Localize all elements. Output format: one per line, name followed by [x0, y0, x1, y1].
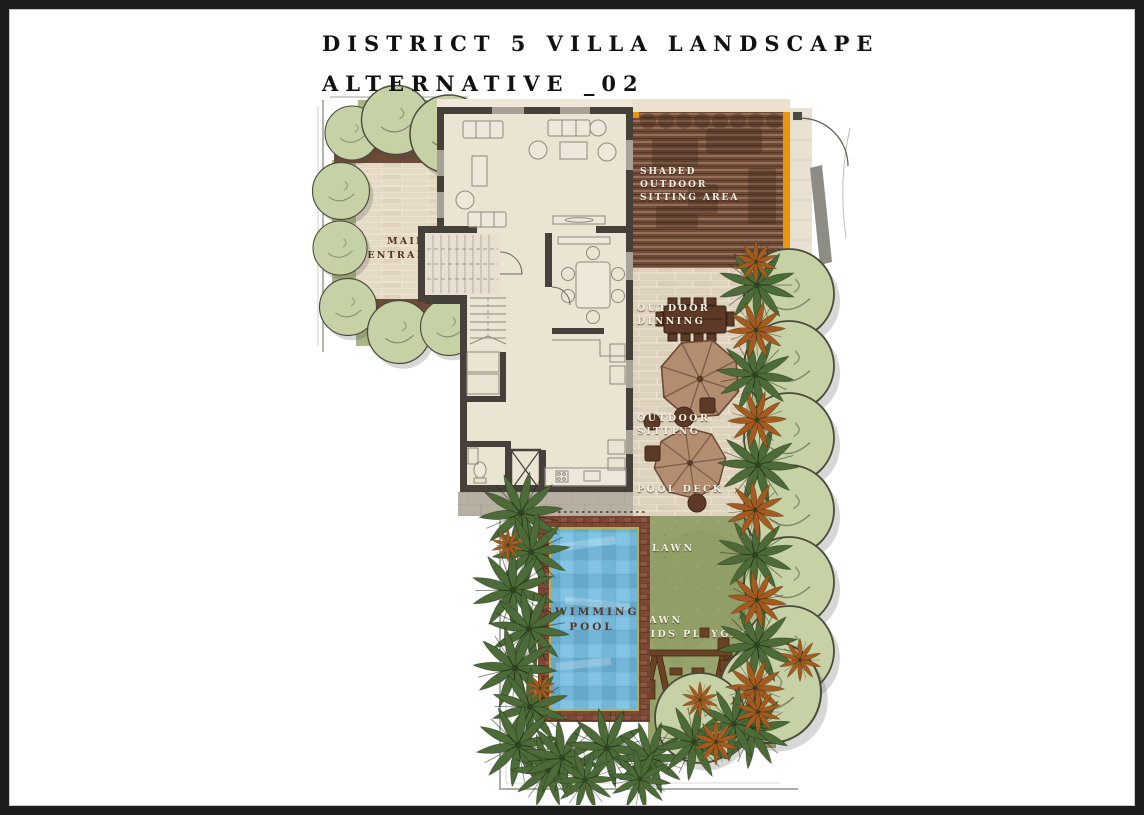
pool-water	[550, 528, 638, 710]
shaded-deck: SHADED OUTDOOR SITTING AREA	[633, 99, 848, 268]
label-outdoor-dinning-2: DINNING	[637, 316, 705, 327]
label-shaded-2: OUTDOOR	[640, 180, 707, 190]
label-pool-deck: POOL DECK	[637, 484, 724, 495]
label-outdoor-sitting-2: SITTING	[637, 426, 700, 437]
label-shaded-1: SHADED	[640, 167, 696, 177]
gate-hinge	[793, 112, 802, 120]
deck-orange-edge	[783, 112, 790, 268]
label-lawn: LAWN	[652, 543, 695, 554]
title-block: DISTRICT 5 VILLA LANDSCAPE ALTERNATIVE _…	[322, 24, 879, 104]
label-swimming-pool-2: POOL	[569, 621, 615, 633]
label-shaded-3: SITTING AREA	[640, 193, 739, 203]
label-outdoor-sitting-1: OUTDOOR	[637, 413, 710, 424]
label-outdoor-dinning-1: OUTDOOR	[637, 303, 710, 314]
villa-building	[418, 99, 633, 492]
drawing-sheet: DISTRICT 5 VILLA LANDSCAPE ALTERNATIVE _…	[0, 0, 1144, 815]
drawing-subtitle: ALTERNATIVE _02	[322, 64, 879, 104]
landscape-plan: MAIN ENTRANCE	[0, 0, 1144, 815]
drawing-title: DISTRICT 5 VILLA LANDSCAPE	[322, 24, 879, 64]
gate-wall	[810, 165, 832, 265]
side-path	[790, 108, 812, 268]
